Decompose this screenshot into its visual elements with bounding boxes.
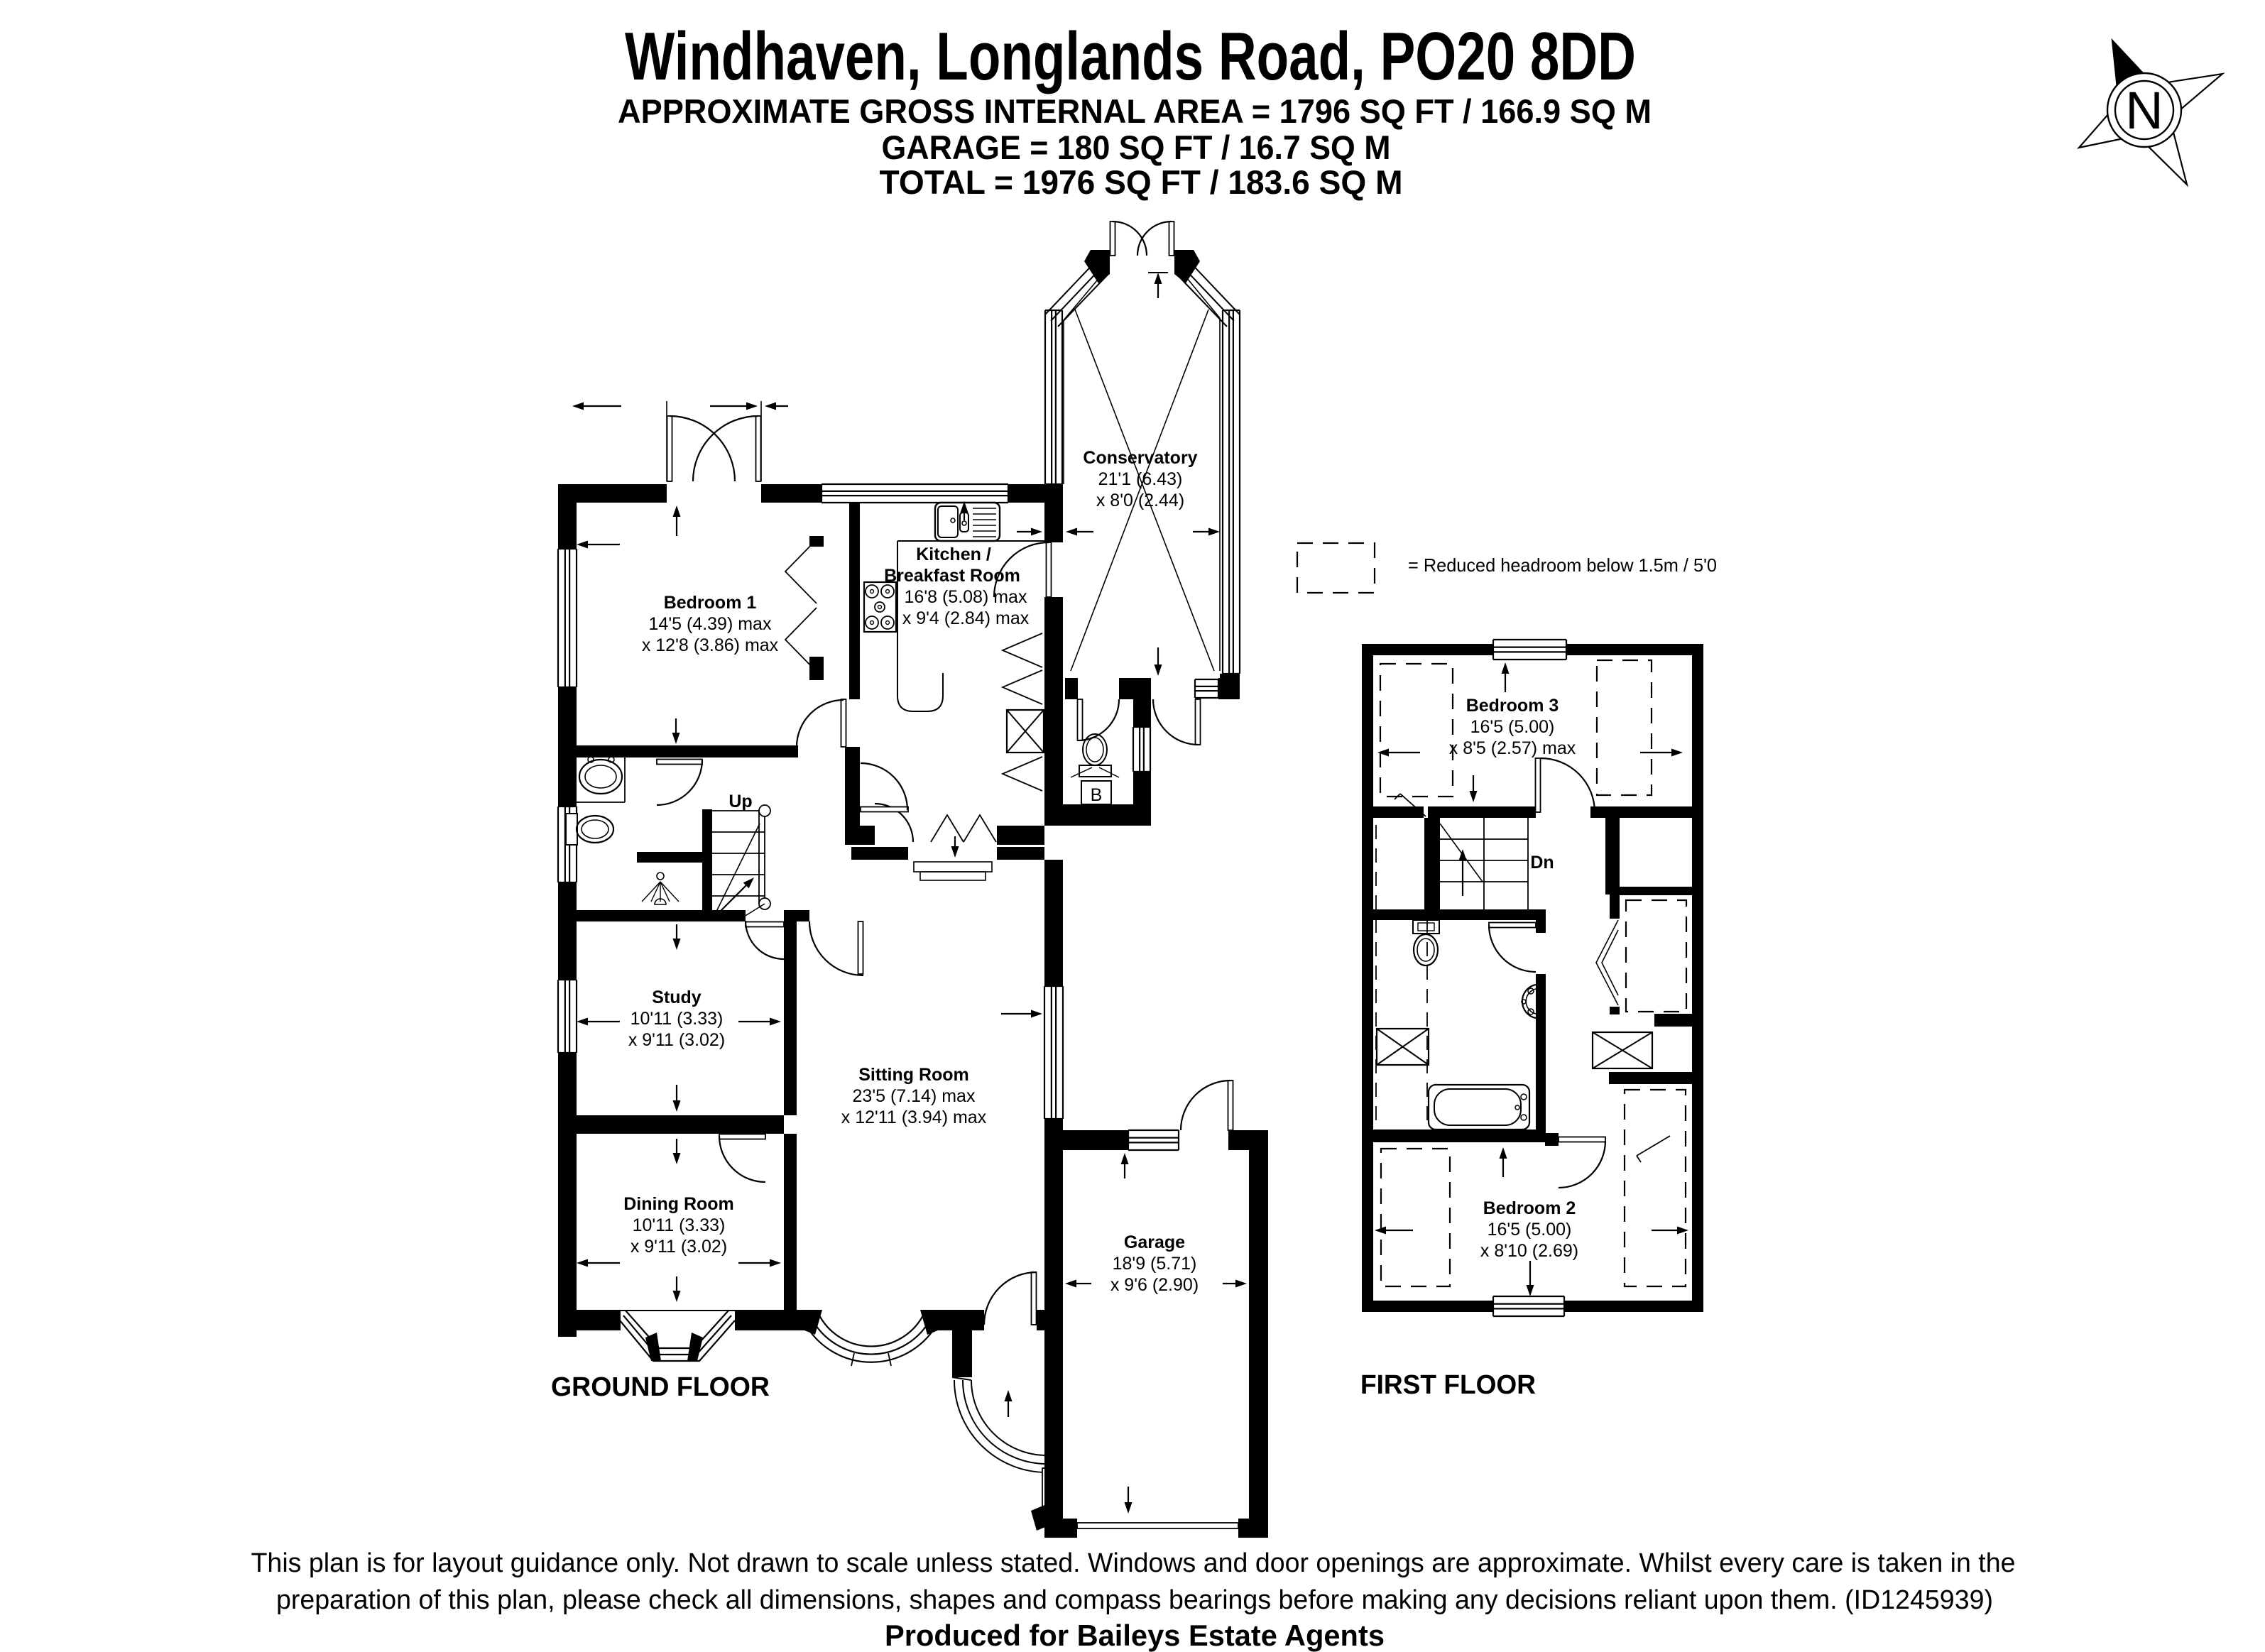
svg-text:x 8'0 (2.44): x 8'0 (2.44)	[1096, 491, 1184, 510]
svg-text:21'1 (6.43): 21'1 (6.43)	[1098, 469, 1183, 489]
svg-text:Kitchen /: Kitchen /	[916, 545, 991, 564]
svg-text:10'11 (3.33): 10'11 (3.33)	[633, 1215, 726, 1235]
svg-text:Sitting Room: Sitting Room	[858, 1065, 969, 1085]
svg-text:Breakfast Room: Breakfast Room	[884, 566, 1020, 586]
svg-text:Bedroom 2: Bedroom 2	[1483, 1198, 1576, 1218]
svg-text:x 8'5 (2.57) max: x 8'5 (2.57) max	[1449, 738, 1576, 758]
svg-text:x 12'8 (3.86) max: x 12'8 (3.86) max	[642, 635, 779, 655]
svg-text:x 8'10 (2.69): x 8'10 (2.69)	[1480, 1241, 1578, 1261]
svg-text:10'11 (3.33): 10'11 (3.33)	[631, 1009, 724, 1029]
svg-text:x 9'11 (3.02): x 9'11 (3.02)	[631, 1237, 727, 1257]
svg-text:18'9 (5.71): 18'9 (5.71)	[1113, 1254, 1197, 1274]
svg-text:B: B	[1091, 785, 1103, 805]
svg-text:14'5 (4.39) max: 14'5 (4.39) max	[649, 614, 772, 634]
svg-text:= Reduced headroom below 1.5m: = Reduced headroom below 1.5m / 5'0	[1408, 554, 1717, 576]
svg-text:GARAGE = 180 SQ FT / 16.7 SQ M: GARAGE = 180 SQ FT / 16.7 SQ M	[882, 128, 1391, 166]
svg-text:preparation of this plan, plea: preparation of this plan, please check a…	[276, 1585, 1993, 1615]
svg-text:Bedroom 3: Bedroom 3	[1466, 696, 1559, 716]
svg-text:16'5 (5.00): 16'5 (5.00)	[1488, 1220, 1572, 1240]
svg-text:Up: Up	[728, 792, 752, 811]
svg-text:APPROXIMATE GROSS INTERNAL ARE: APPROXIMATE GROSS INTERNAL AREA = 1796 S…	[618, 92, 1652, 130]
svg-text:N: N	[2125, 81, 2163, 140]
svg-text:Dn: Dn	[1530, 853, 1554, 873]
svg-text:This plan is for layout guidan: This plan is for layout guidance only. N…	[251, 1548, 2016, 1578]
svg-text:Dining Room: Dining Room	[623, 1194, 734, 1214]
svg-text:FIRST FLOOR: FIRST FLOOR	[1360, 1370, 1536, 1400]
svg-text:TOTAL = 1976 SQ FT / 183.6 SQ: TOTAL = 1976 SQ FT / 183.6 SQ M	[880, 163, 1403, 201]
svg-text:x 9'11 (3.02): x 9'11 (3.02)	[628, 1030, 725, 1050]
svg-text:16'8 (5.08) max: 16'8 (5.08) max	[905, 587, 1027, 607]
svg-text:23'5 (7.14) max: 23'5 (7.14) max	[853, 1086, 976, 1106]
svg-text:Produced for Baileys Estate Ag: Produced for Baileys Estate Agents	[885, 1619, 1385, 1652]
svg-text:Garage: Garage	[1124, 1232, 1185, 1252]
svg-text:Windhaven, Longlands Road, PO2: Windhaven, Longlands Road, PO20 8DD	[625, 18, 1636, 94]
svg-text:x 12'11 (3.94) max: x 12'11 (3.94) max	[841, 1107, 987, 1127]
svg-text:16'5 (5.00): 16'5 (5.00)	[1470, 717, 1555, 737]
svg-text:GROUND FLOOR: GROUND FLOOR	[551, 1372, 770, 1402]
svg-text:x 9'4 (2.84) max: x 9'4 (2.84) max	[902, 608, 1030, 628]
svg-text:Study: Study	[652, 988, 702, 1007]
svg-text:Bedroom 1: Bedroom 1	[664, 593, 757, 613]
svg-text:Conservatory: Conservatory	[1083, 448, 1197, 468]
svg-text:x 9'6 (2.90): x 9'6 (2.90)	[1110, 1275, 1199, 1295]
